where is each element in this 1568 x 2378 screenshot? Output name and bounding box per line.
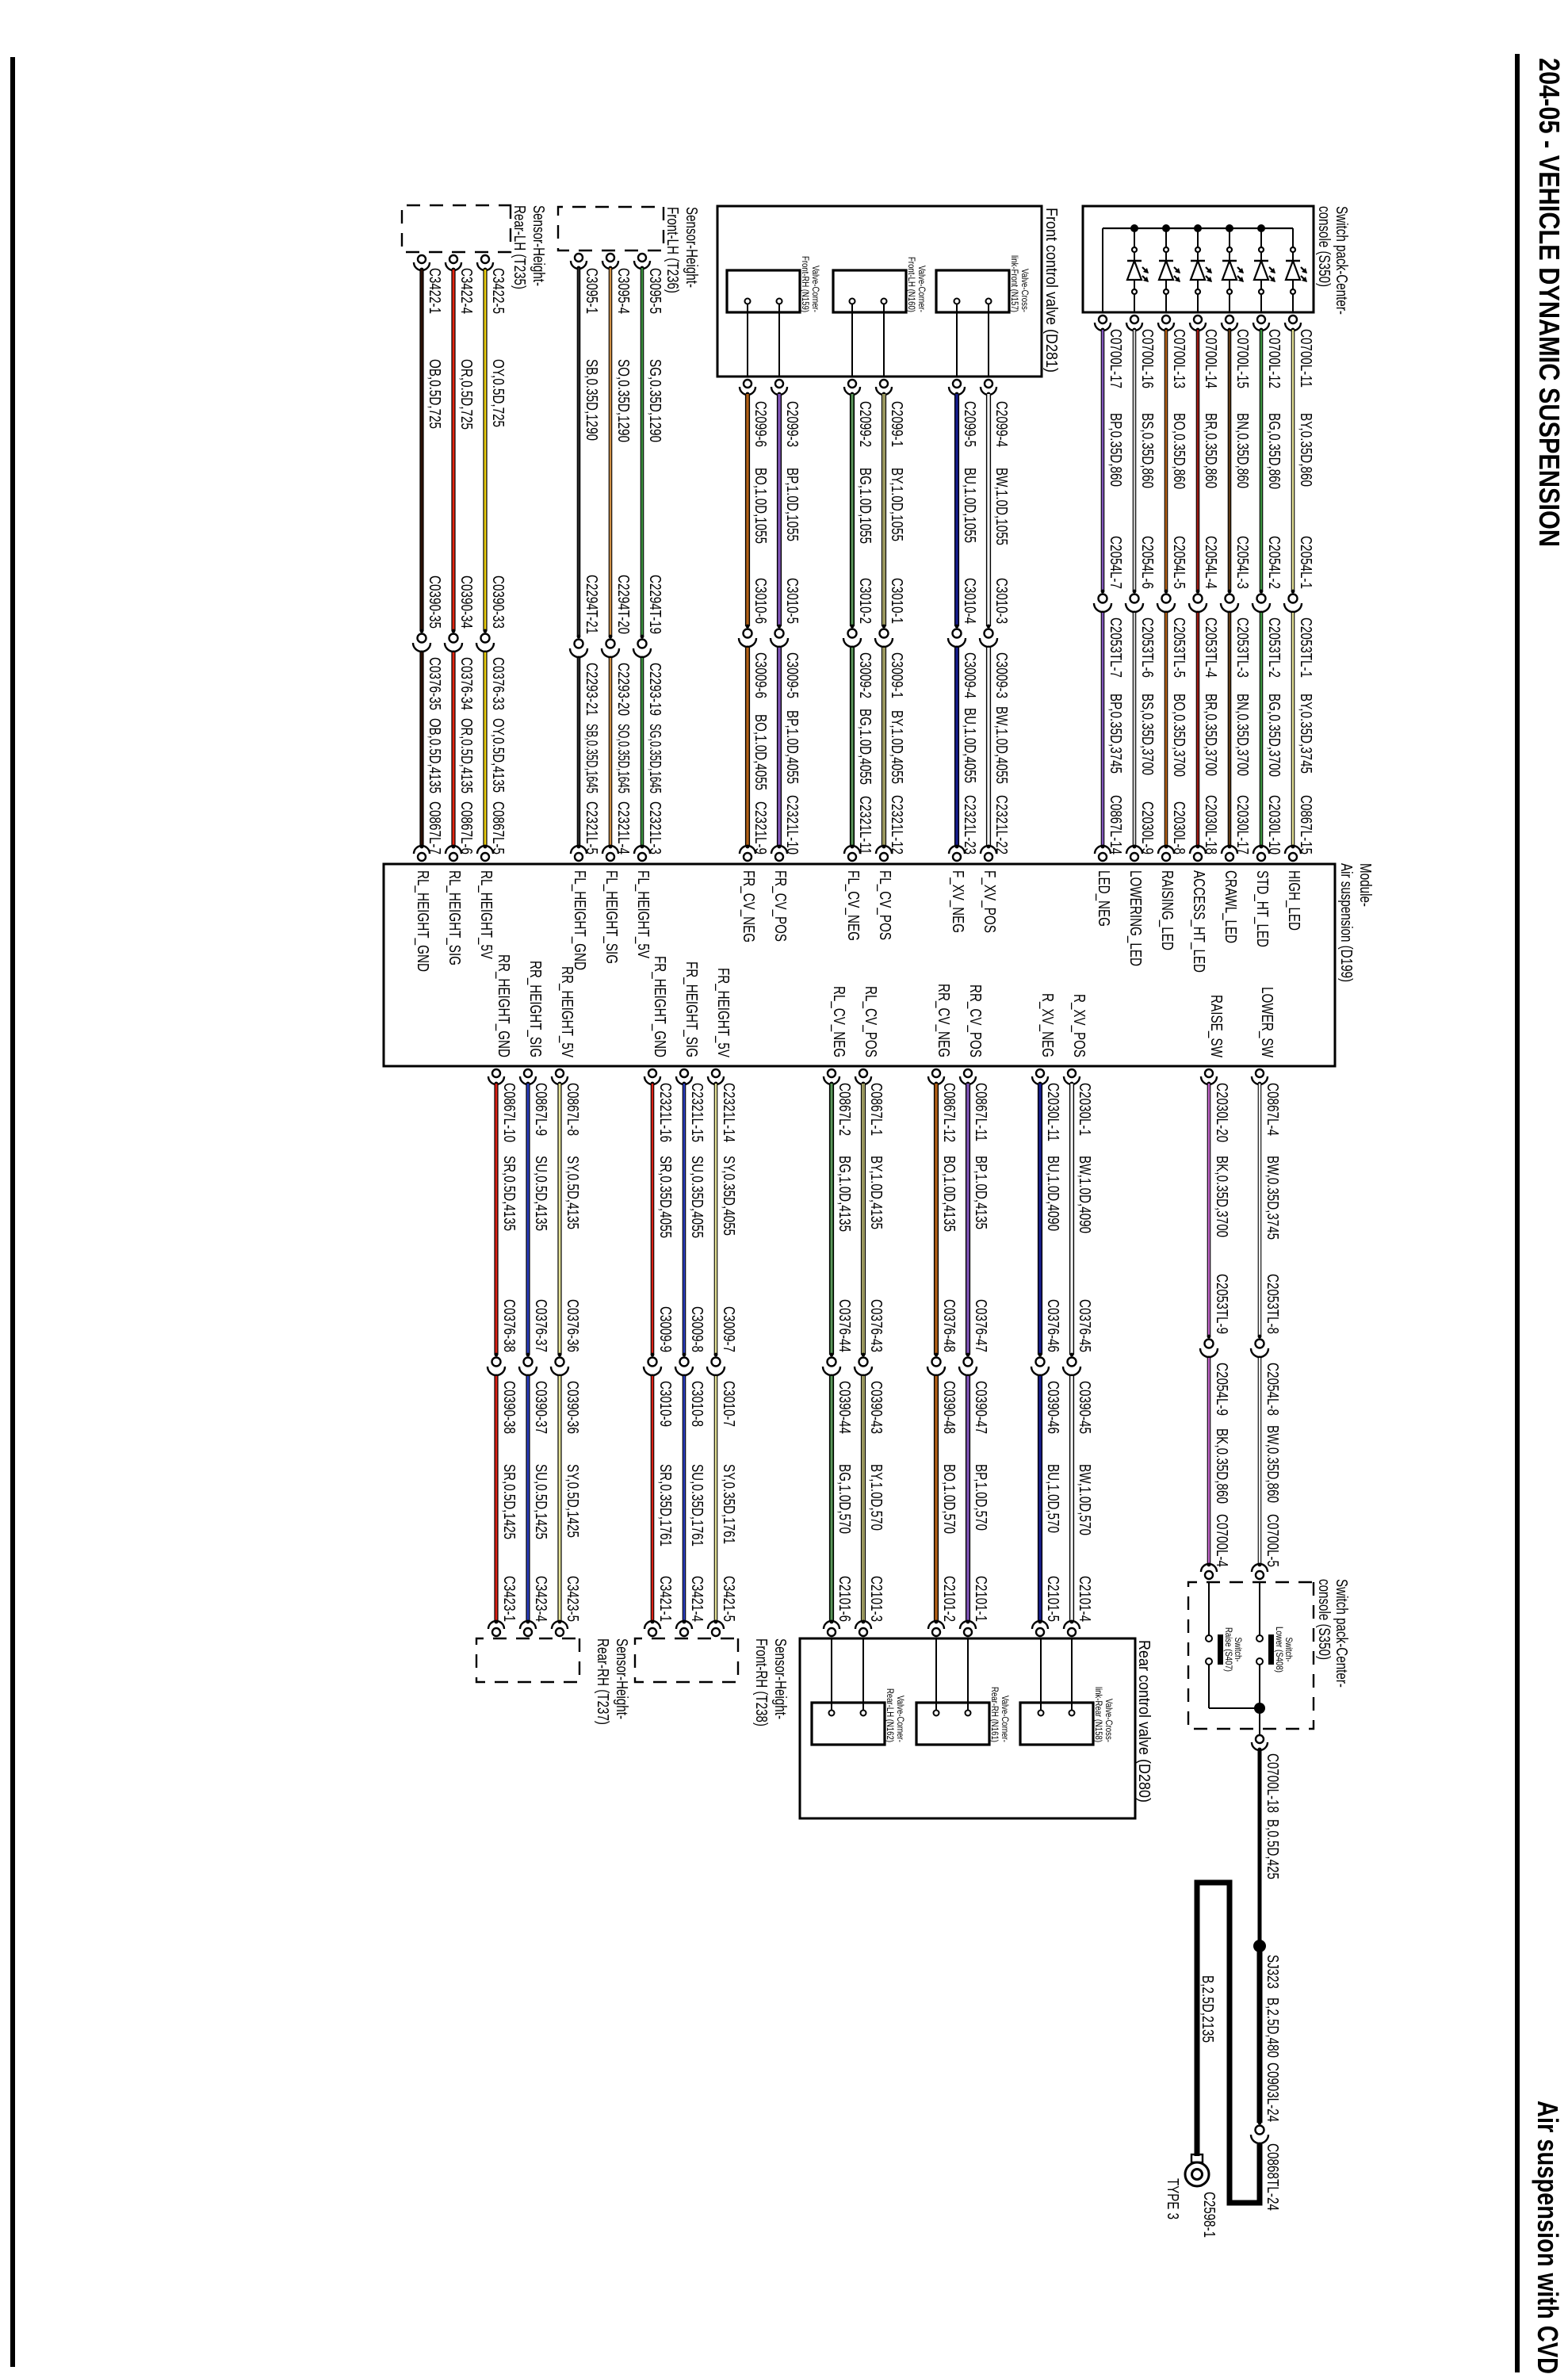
svg-text:B,0.5D,425: B,0.5D,425 bbox=[1264, 1819, 1281, 1879]
svg-text:BN,0.35D,3700: BN,0.35D,3700 bbox=[1233, 694, 1251, 776]
svg-text:C2101-4: C2101-4 bbox=[1076, 1576, 1093, 1622]
svg-text:C3010-3: C3010-3 bbox=[992, 578, 1010, 624]
svg-text:console (S350): console (S350) bbox=[1315, 206, 1333, 287]
svg-text:C3421-4: C3421-4 bbox=[688, 1576, 706, 1622]
svg-text:C2053TL-5: C2053TL-5 bbox=[1170, 617, 1187, 678]
svg-text:C2321L-11: C2321L-11 bbox=[856, 796, 874, 854]
svg-text:C2321L-4: C2321L-4 bbox=[614, 801, 632, 854]
svg-text:C2321L-22: C2321L-22 bbox=[992, 795, 1010, 854]
svg-text:FL_HEIGHT_GND: FL_HEIGHT_GND bbox=[571, 870, 588, 970]
svg-text:SU,0.35D,4055: SU,0.35D,4055 bbox=[688, 1156, 706, 1238]
svg-text:C0376-34: C0376-34 bbox=[457, 657, 475, 710]
svg-text:RR_CV_POS: RR_CV_POS bbox=[966, 984, 984, 1057]
svg-text:C0867L-2: C0867L-2 bbox=[836, 1083, 853, 1136]
svg-text:OR,0.5D,725: OR,0.5D,725 bbox=[457, 359, 475, 430]
svg-text:C2099-4: C2099-4 bbox=[992, 401, 1010, 447]
svg-text:BP,1.0D,1055: BP,1.0D,1055 bbox=[783, 468, 801, 541]
svg-text:SU,0.5D,1425: SU,0.5D,1425 bbox=[532, 1464, 549, 1539]
svg-text:BG,1.0D,1055: BG,1.0D,1055 bbox=[856, 468, 874, 544]
svg-text:SO,0.35D,1290: SO,0.35D,1290 bbox=[614, 359, 632, 442]
svg-text:C3009-7: C3009-7 bbox=[720, 1306, 737, 1352]
svg-text:LOWER_SW: LOWER_SW bbox=[1258, 987, 1275, 1057]
svg-text:ACCESS_HT_LED: ACCESS_HT_LED bbox=[1190, 870, 1207, 973]
svg-text:Front-RH (T238): Front-RH (T238) bbox=[752, 1638, 770, 1726]
svg-text:SG,0.35D,1645: SG,0.35D,1645 bbox=[646, 724, 664, 793]
svg-text:C2598-1: C2598-1 bbox=[1200, 2192, 1218, 2238]
svg-text:C2321L-9: C2321L-9 bbox=[751, 801, 769, 854]
svg-text:Sensor-Height-: Sensor-Height- bbox=[530, 205, 547, 286]
svg-text:C3009-3: C3009-3 bbox=[992, 652, 1010, 698]
svg-text:C2054L-5: C2054L-5 bbox=[1170, 536, 1187, 589]
svg-text:BU,1.0D,570: BU,1.0D,570 bbox=[1044, 1464, 1061, 1533]
svg-text:RL_CV_POS: RL_CV_POS bbox=[862, 986, 879, 1057]
svg-text:Valve-Corner-: Valve-Corner- bbox=[895, 1696, 906, 1742]
svg-text:BG,1.0D,4135: BG,1.0D,4135 bbox=[836, 1156, 853, 1232]
svg-text:C0390-48: C0390-48 bbox=[940, 1381, 958, 1434]
svg-text:BP,1.0D,570: BP,1.0D,570 bbox=[972, 1464, 989, 1531]
svg-text:SO,0.35D,1645: SO,0.35D,1645 bbox=[614, 724, 632, 793]
svg-text:RL_HEIGHT_5V: RL_HEIGHT_5V bbox=[477, 870, 495, 959]
svg-text:C2054L-7: C2054L-7 bbox=[1107, 536, 1124, 589]
svg-text:FR_HEIGHT_5V: FR_HEIGHT_5V bbox=[714, 968, 732, 1057]
svg-text:C2101-2: C2101-2 bbox=[940, 1576, 958, 1622]
svg-text:RL_CV_NEG: RL_CV_NEG bbox=[830, 986, 847, 1057]
svg-text:C0390-45: C0390-45 bbox=[1076, 1381, 1093, 1434]
svg-text:C0390-34: C0390-34 bbox=[457, 575, 475, 629]
svg-text:Valve-Cross-: Valve-Cross- bbox=[1103, 1699, 1115, 1742]
svg-text:TYPE 3: TYPE 3 bbox=[1164, 2178, 1181, 2219]
svg-text:Front-LH (T236): Front-LH (T236) bbox=[664, 207, 681, 293]
svg-text:C0867L-1: C0867L-1 bbox=[867, 1083, 885, 1136]
svg-text:Valve-Cross-: Valve-Cross- bbox=[1019, 269, 1031, 312]
svg-text:C0867L-14: C0867L-14 bbox=[1107, 795, 1124, 854]
svg-text:C2321L-12: C2321L-12 bbox=[888, 795, 905, 854]
svg-text:RAISING_LED: RAISING_LED bbox=[1158, 870, 1176, 950]
svg-text:C2321L-15: C2321L-15 bbox=[688, 1083, 706, 1142]
svg-text:C0700L-4: C0700L-4 bbox=[1213, 1514, 1230, 1567]
svg-text:Front control valve (D281): Front control valve (D281) bbox=[1042, 208, 1060, 373]
svg-text:C2053TL-3: C2053TL-3 bbox=[1233, 617, 1251, 678]
svg-text:Lower (S408): Lower (S408) bbox=[1274, 1627, 1285, 1673]
svg-text:C0390-36: C0390-36 bbox=[564, 1381, 581, 1434]
svg-text:BW,1.0D,4055: BW,1.0D,4055 bbox=[992, 706, 1010, 784]
svg-text:RR_HEIGHT_SIG: RR_HEIGHT_SIG bbox=[526, 961, 544, 1057]
svg-text:STD_HT_LED: STD_HT_LED bbox=[1253, 870, 1271, 947]
svg-text:C0700L-13: C0700L-13 bbox=[1170, 329, 1187, 388]
svg-text:FL_CV_NEG: FL_CV_NEG bbox=[844, 870, 862, 941]
svg-text:C0376-44: C0376-44 bbox=[836, 1299, 853, 1352]
svg-text:BY,1.0D,4055: BY,1.0D,4055 bbox=[888, 710, 905, 784]
svg-text:BY,1.0D,1055: BY,1.0D,1055 bbox=[888, 468, 905, 541]
svg-text:C2054L-6: C2054L-6 bbox=[1138, 536, 1156, 589]
svg-text:C0867L-7: C0867L-7 bbox=[426, 801, 443, 854]
svg-text:RR_CV_NEG: RR_CV_NEG bbox=[935, 984, 952, 1057]
svg-text:C2293-21: C2293-21 bbox=[583, 663, 600, 716]
svg-text:C3421-1: C3421-1 bbox=[656, 1576, 674, 1622]
svg-text:BO,0.35D,860: BO,0.35D,860 bbox=[1170, 413, 1187, 489]
svg-text:C0867L-10: C0867L-10 bbox=[500, 1083, 518, 1142]
svg-text:C2294T-19: C2294T-19 bbox=[646, 575, 664, 634]
svg-text:C3009-6: C3009-6 bbox=[751, 652, 769, 698]
svg-text:C0376-48: C0376-48 bbox=[940, 1299, 958, 1352]
svg-text:Switch pack-Center-: Switch pack-Center- bbox=[1333, 206, 1350, 315]
svg-text:C3010-2: C3010-2 bbox=[856, 578, 874, 624]
svg-text:FR_CV_NEG: FR_CV_NEG bbox=[740, 870, 757, 942]
svg-text:C0376-35: C0376-35 bbox=[426, 657, 443, 710]
svg-text:C2101-1: C2101-1 bbox=[972, 1576, 989, 1622]
svg-text:BS,0.35D,860: BS,0.35D,860 bbox=[1138, 413, 1156, 488]
svg-text:C3009-9: C3009-9 bbox=[656, 1306, 674, 1352]
svg-text:C0867L-15: C0867L-15 bbox=[1297, 795, 1314, 854]
svg-text:C0376-33: C0376-33 bbox=[489, 657, 507, 710]
svg-text:C0390-38: C0390-38 bbox=[500, 1381, 518, 1434]
svg-text:C3009-5: C3009-5 bbox=[783, 652, 801, 698]
svg-text:SY,0.35D,4055: SY,0.35D,4055 bbox=[720, 1156, 737, 1236]
svg-text:BP,0.35D,860: BP,0.35D,860 bbox=[1107, 413, 1124, 487]
svg-text:C2101-6: C2101-6 bbox=[836, 1576, 853, 1622]
svg-text:C2054L-1: C2054L-1 bbox=[1297, 536, 1314, 589]
svg-text:C0390-44: C0390-44 bbox=[836, 1381, 853, 1434]
svg-text:OY,0.5D,725: OY,0.5D,725 bbox=[489, 359, 507, 427]
svg-text:C3010-8: C3010-8 bbox=[688, 1381, 706, 1427]
svg-text:Module-: Module- bbox=[1356, 863, 1374, 907]
svg-text:BG,0.35D,3700: BG,0.35D,3700 bbox=[1265, 694, 1283, 777]
svg-text:Raise (S407): Raise (S407) bbox=[1223, 1627, 1234, 1672]
svg-text:C3423-1: C3423-1 bbox=[500, 1576, 518, 1622]
svg-text:C2293-19: C2293-19 bbox=[646, 663, 664, 716]
svg-text:C0390-33: C0390-33 bbox=[489, 575, 507, 629]
svg-text:Sensor-Height-: Sensor-Height- bbox=[683, 207, 700, 288]
svg-text:SB,0.35D,1645: SB,0.35D,1645 bbox=[583, 724, 600, 793]
svg-text:Switch-: Switch- bbox=[1283, 1638, 1295, 1662]
svg-text:SU,0.35D,1761: SU,0.35D,1761 bbox=[688, 1464, 706, 1546]
svg-text:SJ323: SJ323 bbox=[1264, 1955, 1281, 1989]
svg-text:Air suspension (D199): Air suspension (D199) bbox=[1337, 863, 1355, 982]
svg-text:BG,0.35D,860: BG,0.35D,860 bbox=[1265, 413, 1283, 489]
svg-text:B,2.5D,2135: B,2.5D,2135 bbox=[1199, 1975, 1216, 2043]
svg-text:C3009-2: C3009-2 bbox=[856, 652, 874, 698]
svg-text:BW,1.0D,1055: BW,1.0D,1055 bbox=[992, 468, 1010, 545]
svg-text:C0390-37: C0390-37 bbox=[532, 1381, 549, 1434]
svg-text:BP,0.35D,3745: BP,0.35D,3745 bbox=[1107, 694, 1124, 774]
svg-text:C2321L-5: C2321L-5 bbox=[583, 801, 600, 854]
svg-text:BO,1.0D,1055: BO,1.0D,1055 bbox=[751, 468, 769, 544]
svg-text:C2294T-20: C2294T-20 bbox=[614, 575, 632, 634]
svg-text:SB,0.35D,1290: SB,0.35D,1290 bbox=[583, 359, 600, 441]
svg-text:CRAWL_LED: CRAWL_LED bbox=[1222, 870, 1239, 943]
svg-text:FR_HEIGHT_SIG: FR_HEIGHT_SIG bbox=[683, 962, 700, 1057]
svg-text:C2053TL-6: C2053TL-6 bbox=[1138, 617, 1156, 678]
svg-text:C0867L-9: C0867L-9 bbox=[532, 1083, 549, 1136]
svg-text:C2053TL-9: C2053TL-9 bbox=[1213, 1274, 1230, 1334]
svg-text:BP,1.0D,4135: BP,1.0D,4135 bbox=[972, 1156, 989, 1229]
svg-text:BU,1.0D,4055: BU,1.0D,4055 bbox=[961, 708, 978, 783]
svg-text:SR,0.5D,1425: SR,0.5D,1425 bbox=[500, 1464, 518, 1539]
svg-text:C3422-4: C3422-4 bbox=[457, 268, 475, 314]
svg-text:C0376-46: C0376-46 bbox=[1044, 1299, 1061, 1352]
svg-text:C2321L-3: C2321L-3 bbox=[646, 801, 664, 854]
svg-text:C2054L-3: C2054L-3 bbox=[1233, 536, 1251, 589]
svg-text:C2030L-1: C2030L-1 bbox=[1076, 1083, 1093, 1136]
svg-text:C3422-1: C3422-1 bbox=[426, 268, 443, 314]
svg-text:C0867L-11: C0867L-11 bbox=[972, 1083, 989, 1141]
svg-text:BY,0.35D,860: BY,0.35D,860 bbox=[1297, 413, 1314, 487]
svg-text:FL_CV_POS: FL_CV_POS bbox=[876, 870, 893, 940]
svg-text:C2321L-16: C2321L-16 bbox=[656, 1083, 674, 1142]
svg-text:C0390-35: C0390-35 bbox=[426, 575, 443, 629]
svg-text:C3009-4: C3009-4 bbox=[961, 652, 978, 698]
svg-text:BR,0.35D,3700: BR,0.35D,3700 bbox=[1202, 694, 1219, 776]
svg-text:RL_HEIGHT_SIG: RL_HEIGHT_SIG bbox=[446, 870, 463, 965]
svg-text:C2321L-23: C2321L-23 bbox=[961, 795, 978, 854]
svg-text:F_XV_NEG: F_XV_NEG bbox=[949, 870, 966, 933]
svg-text:link-Front (N157): link-Front (N157) bbox=[1009, 255, 1020, 312]
svg-text:C0376-45: C0376-45 bbox=[1076, 1299, 1093, 1352]
svg-text:C0700L-12: C0700L-12 bbox=[1265, 329, 1283, 388]
svg-text:SR,0.5D,4135: SR,0.5D,4135 bbox=[500, 1156, 518, 1231]
svg-text:BR,0.35D,860: BR,0.35D,860 bbox=[1202, 413, 1219, 488]
svg-text:C0376-36: C0376-36 bbox=[564, 1299, 581, 1352]
svg-text:SU,0.5D,4135: SU,0.5D,4135 bbox=[532, 1156, 549, 1231]
svg-text:SR,0.35D,1761: SR,0.35D,1761 bbox=[656, 1464, 674, 1546]
svg-text:C0903L-24: C0903L-24 bbox=[1264, 2063, 1281, 2122]
svg-text:C0700L-11: C0700L-11 bbox=[1297, 329, 1314, 388]
svg-text:BO,1.0D,4135: BO,1.0D,4135 bbox=[940, 1156, 958, 1232]
svg-text:Air suspension with CVD: Air suspension with CVD bbox=[1532, 2101, 1564, 2374]
svg-text:C2030L-10: C2030L-10 bbox=[1265, 795, 1283, 854]
svg-text:Valve-Corner-: Valve-Corner- bbox=[916, 266, 927, 312]
svg-text:C2101-3: C2101-3 bbox=[867, 1576, 885, 1622]
svg-text:C2294T-21: C2294T-21 bbox=[583, 575, 600, 634]
svg-text:Rear control valve (D280): Rear control valve (D280) bbox=[1135, 1640, 1153, 1803]
svg-text:BY,1.0D,570: BY,1.0D,570 bbox=[867, 1464, 885, 1531]
svg-text:BW,1.0D,4090: BW,1.0D,4090 bbox=[1076, 1156, 1093, 1233]
svg-text:BW,1.0D,570: BW,1.0D,570 bbox=[1076, 1464, 1093, 1535]
svg-text:BO,1.0D,570: BO,1.0D,570 bbox=[940, 1464, 958, 1534]
svg-text:C3009-8: C3009-8 bbox=[688, 1306, 706, 1352]
svg-text:C0376-47: C0376-47 bbox=[972, 1299, 989, 1352]
svg-text:FR_HEIGHT_GND: FR_HEIGHT_GND bbox=[651, 956, 668, 1057]
svg-text:C2099-6: C2099-6 bbox=[751, 401, 769, 447]
svg-text:Valve-Corner-: Valve-Corner- bbox=[1000, 1696, 1011, 1742]
svg-text:C2054L-8: C2054L-8 bbox=[1264, 1363, 1281, 1416]
svg-text:C2030L-18: C2030L-18 bbox=[1202, 795, 1219, 854]
svg-text:RR_HEIGHT_5V: RR_HEIGHT_5V bbox=[558, 966, 576, 1057]
svg-text:C3095-4: C3095-4 bbox=[614, 268, 632, 314]
svg-text:C2101-5: C2101-5 bbox=[1044, 1576, 1061, 1622]
svg-text:Sensor-Height-: Sensor-Height- bbox=[613, 1638, 630, 1719]
svg-text:C2099-1: C2099-1 bbox=[888, 401, 905, 447]
svg-text:C3009-1: C3009-1 bbox=[888, 652, 905, 698]
svg-text:C0867L-12: C0867L-12 bbox=[940, 1083, 958, 1142]
svg-text:C0390-43: C0390-43 bbox=[867, 1381, 885, 1434]
svg-text:FL_HEIGHT_SIG: FL_HEIGHT_SIG bbox=[602, 870, 620, 964]
svg-text:console (S350): console (S350) bbox=[1315, 1579, 1333, 1660]
svg-text:F_XV_POS: F_XV_POS bbox=[981, 870, 998, 933]
svg-text:C0376-38: C0376-38 bbox=[500, 1299, 518, 1352]
svg-text:C0700L-18: C0700L-18 bbox=[1264, 1753, 1281, 1813]
svg-text:C3010-5: C3010-5 bbox=[783, 578, 801, 624]
svg-text:RR_HEIGHT_GND: RR_HEIGHT_GND bbox=[495, 954, 512, 1057]
svg-text:C2053TL-1: C2053TL-1 bbox=[1297, 617, 1314, 678]
svg-text:BK,0.35D,860: BK,0.35D,860 bbox=[1213, 1428, 1230, 1504]
svg-text:C0867L-5: C0867L-5 bbox=[489, 801, 507, 854]
svg-text:C2321L-14: C2321L-14 bbox=[720, 1083, 737, 1142]
svg-text:C0700L-14: C0700L-14 bbox=[1202, 329, 1219, 388]
svg-text:BK,0.35D,3700: BK,0.35D,3700 bbox=[1213, 1156, 1230, 1237]
svg-text:C2054L-4: C2054L-4 bbox=[1202, 536, 1219, 589]
svg-text:Rear-RH (T237): Rear-RH (T237) bbox=[594, 1638, 611, 1725]
svg-text:C0867L-4: C0867L-4 bbox=[1264, 1083, 1281, 1136]
svg-text:C3095-5: C3095-5 bbox=[646, 268, 664, 314]
svg-text:SG,0.35D,1290: SG,0.35D,1290 bbox=[646, 359, 664, 442]
svg-text:C0867L-6: C0867L-6 bbox=[457, 801, 475, 854]
svg-text:204-05 - VEHICLE DYNAMIC SUSPE: 204-05 - VEHICLE DYNAMIC SUSPENSION bbox=[1533, 58, 1566, 547]
svg-text:FR_CV_POS: FR_CV_POS bbox=[771, 870, 789, 942]
svg-text:C3422-5: C3422-5 bbox=[489, 268, 507, 314]
svg-text:Valve-Corner-: Valve-Corner- bbox=[810, 266, 821, 312]
svg-text:BO,1.0D,4055: BO,1.0D,4055 bbox=[751, 714, 769, 790]
svg-text:SY,0.5D,1425: SY,0.5D,1425 bbox=[564, 1464, 581, 1538]
svg-text:OY,0.5D,4135: OY,0.5D,4135 bbox=[489, 718, 507, 793]
svg-text:C3423-4: C3423-4 bbox=[532, 1576, 549, 1622]
svg-text:SY,0.5D,4135: SY,0.5D,4135 bbox=[564, 1156, 581, 1229]
svg-text:C3010-4: C3010-4 bbox=[961, 578, 978, 624]
svg-text:C0376-37: C0376-37 bbox=[532, 1299, 549, 1352]
svg-text:BW,0.35D,860: BW,0.35D,860 bbox=[1264, 1425, 1281, 1503]
svg-text:BW,0.35D,3745: BW,0.35D,3745 bbox=[1264, 1156, 1281, 1240]
svg-text:OB,0.5D,4135: OB,0.5D,4135 bbox=[426, 718, 443, 793]
svg-text:C0390-47: C0390-47 bbox=[972, 1381, 989, 1434]
svg-text:Rear-LH (T235): Rear-LH (T235) bbox=[511, 205, 528, 289]
svg-text:LOWERING_LED: LOWERING_LED bbox=[1126, 870, 1144, 966]
svg-text:C2030L-8: C2030L-8 bbox=[1170, 801, 1187, 854]
svg-text:R_XV_NEG: R_XV_NEG bbox=[1038, 993, 1056, 1057]
svg-text:C2053TL-8: C2053TL-8 bbox=[1264, 1274, 1281, 1334]
svg-text:RL_HEIGHT_GND: RL_HEIGHT_GND bbox=[414, 870, 431, 972]
svg-text:C2053TL-2: C2053TL-2 bbox=[1265, 617, 1283, 678]
svg-text:C2054L-9: C2054L-9 bbox=[1213, 1363, 1230, 1416]
svg-text:C3095-1: C3095-1 bbox=[583, 268, 600, 314]
svg-text:SR,0.35D,4055: SR,0.35D,4055 bbox=[656, 1156, 674, 1238]
svg-text:C3010-6: C3010-6 bbox=[751, 578, 769, 624]
svg-text:C2321L-10: C2321L-10 bbox=[783, 795, 801, 854]
svg-text:Front-LH (N160): Front-LH (N160) bbox=[906, 257, 917, 312]
svg-text:Switch-: Switch- bbox=[1233, 1638, 1244, 1662]
svg-text:link-Rear (N158): link-Rear (N158) bbox=[1093, 1687, 1104, 1742]
svg-text:BG,1.0D,4055: BG,1.0D,4055 bbox=[856, 709, 874, 785]
svg-text:BY,0.35D,3745: BY,0.35D,3745 bbox=[1297, 694, 1314, 774]
svg-text:C2099-2: C2099-2 bbox=[856, 401, 874, 447]
svg-text:RAISE_SW: RAISE_SW bbox=[1207, 995, 1225, 1057]
svg-text:C2030L-11: C2030L-11 bbox=[1044, 1083, 1061, 1141]
svg-text:Front-RH (N159): Front-RH (N159) bbox=[800, 256, 811, 312]
svg-text:Rear-LH (N162): Rear-LH (N162) bbox=[885, 1688, 896, 1742]
svg-text:C3010-9: C3010-9 bbox=[656, 1381, 674, 1427]
svg-text:BG,1.0D,570: BG,1.0D,570 bbox=[836, 1464, 853, 1534]
svg-text:BO,0.35D,3700: BO,0.35D,3700 bbox=[1170, 694, 1187, 777]
svg-text:C0700L-16: C0700L-16 bbox=[1138, 329, 1156, 388]
svg-text:C0867L-8: C0867L-8 bbox=[564, 1083, 581, 1136]
svg-text:C0868TL-24: C0868TL-24 bbox=[1264, 2143, 1281, 2211]
svg-text:BP,1.0D,4055: BP,1.0D,4055 bbox=[783, 710, 801, 784]
svg-text:Switch pack-Center-: Switch pack-Center- bbox=[1333, 1579, 1350, 1688]
svg-text:C3421-5: C3421-5 bbox=[720, 1576, 737, 1622]
svg-text:C0700L-15: C0700L-15 bbox=[1233, 329, 1251, 388]
svg-text:C3010-1: C3010-1 bbox=[888, 578, 905, 624]
svg-text:FL_HEIGHT_5V: FL_HEIGHT_5V bbox=[634, 870, 652, 959]
svg-text:C2030L-17: C2030L-17 bbox=[1233, 795, 1251, 854]
svg-text:Rear-RH (N161): Rear-RH (N161) bbox=[989, 1687, 1000, 1742]
svg-text:C0390-46: C0390-46 bbox=[1044, 1381, 1061, 1434]
svg-text:SY,0.35D,1761: SY,0.35D,1761 bbox=[720, 1464, 737, 1544]
svg-text:Sensor-Height-: Sensor-Height- bbox=[771, 1638, 789, 1719]
svg-text:B,2.5D,480: B,2.5D,480 bbox=[1264, 1998, 1281, 2058]
svg-text:C0700L-5: C0700L-5 bbox=[1264, 1514, 1281, 1567]
svg-text:LED_NEG: LED_NEG bbox=[1095, 870, 1112, 927]
svg-text:C0700L-17: C0700L-17 bbox=[1107, 329, 1124, 388]
svg-text:C2099-5: C2099-5 bbox=[961, 401, 978, 447]
svg-text:C2030L-20: C2030L-20 bbox=[1213, 1083, 1230, 1142]
svg-text:C2099-3: C2099-3 bbox=[783, 401, 801, 447]
svg-text:OR,0.5D,4135: OR,0.5D,4135 bbox=[457, 718, 475, 793]
svg-text:OB,0.5D,725: OB,0.5D,725 bbox=[426, 359, 443, 429]
svg-text:BU,1.0D,4090: BU,1.0D,4090 bbox=[1044, 1156, 1061, 1231]
svg-text:R_XV_POS: R_XV_POS bbox=[1070, 994, 1088, 1057]
svg-text:BS,0.35D,3700: BS,0.35D,3700 bbox=[1138, 694, 1156, 775]
svg-text:BU,1.0D,1055: BU,1.0D,1055 bbox=[961, 468, 978, 543]
svg-text:C2054L-2: C2054L-2 bbox=[1265, 536, 1283, 589]
svg-text:C2053TL-7: C2053TL-7 bbox=[1107, 617, 1124, 678]
svg-text:C2053TL-4: C2053TL-4 bbox=[1202, 617, 1219, 678]
svg-text:C2293-20: C2293-20 bbox=[614, 663, 632, 716]
svg-text:C3010-7: C3010-7 bbox=[720, 1381, 737, 1427]
svg-text:C0376-43: C0376-43 bbox=[867, 1299, 885, 1352]
svg-text:C3423-5: C3423-5 bbox=[564, 1576, 581, 1622]
svg-text:BN,0.35D,860: BN,0.35D,860 bbox=[1233, 413, 1251, 488]
svg-text:BY,1.0D,4135: BY,1.0D,4135 bbox=[867, 1156, 885, 1229]
svg-text:HIGH_LED: HIGH_LED bbox=[1285, 870, 1302, 931]
svg-text:C2030L-9: C2030L-9 bbox=[1138, 801, 1156, 854]
